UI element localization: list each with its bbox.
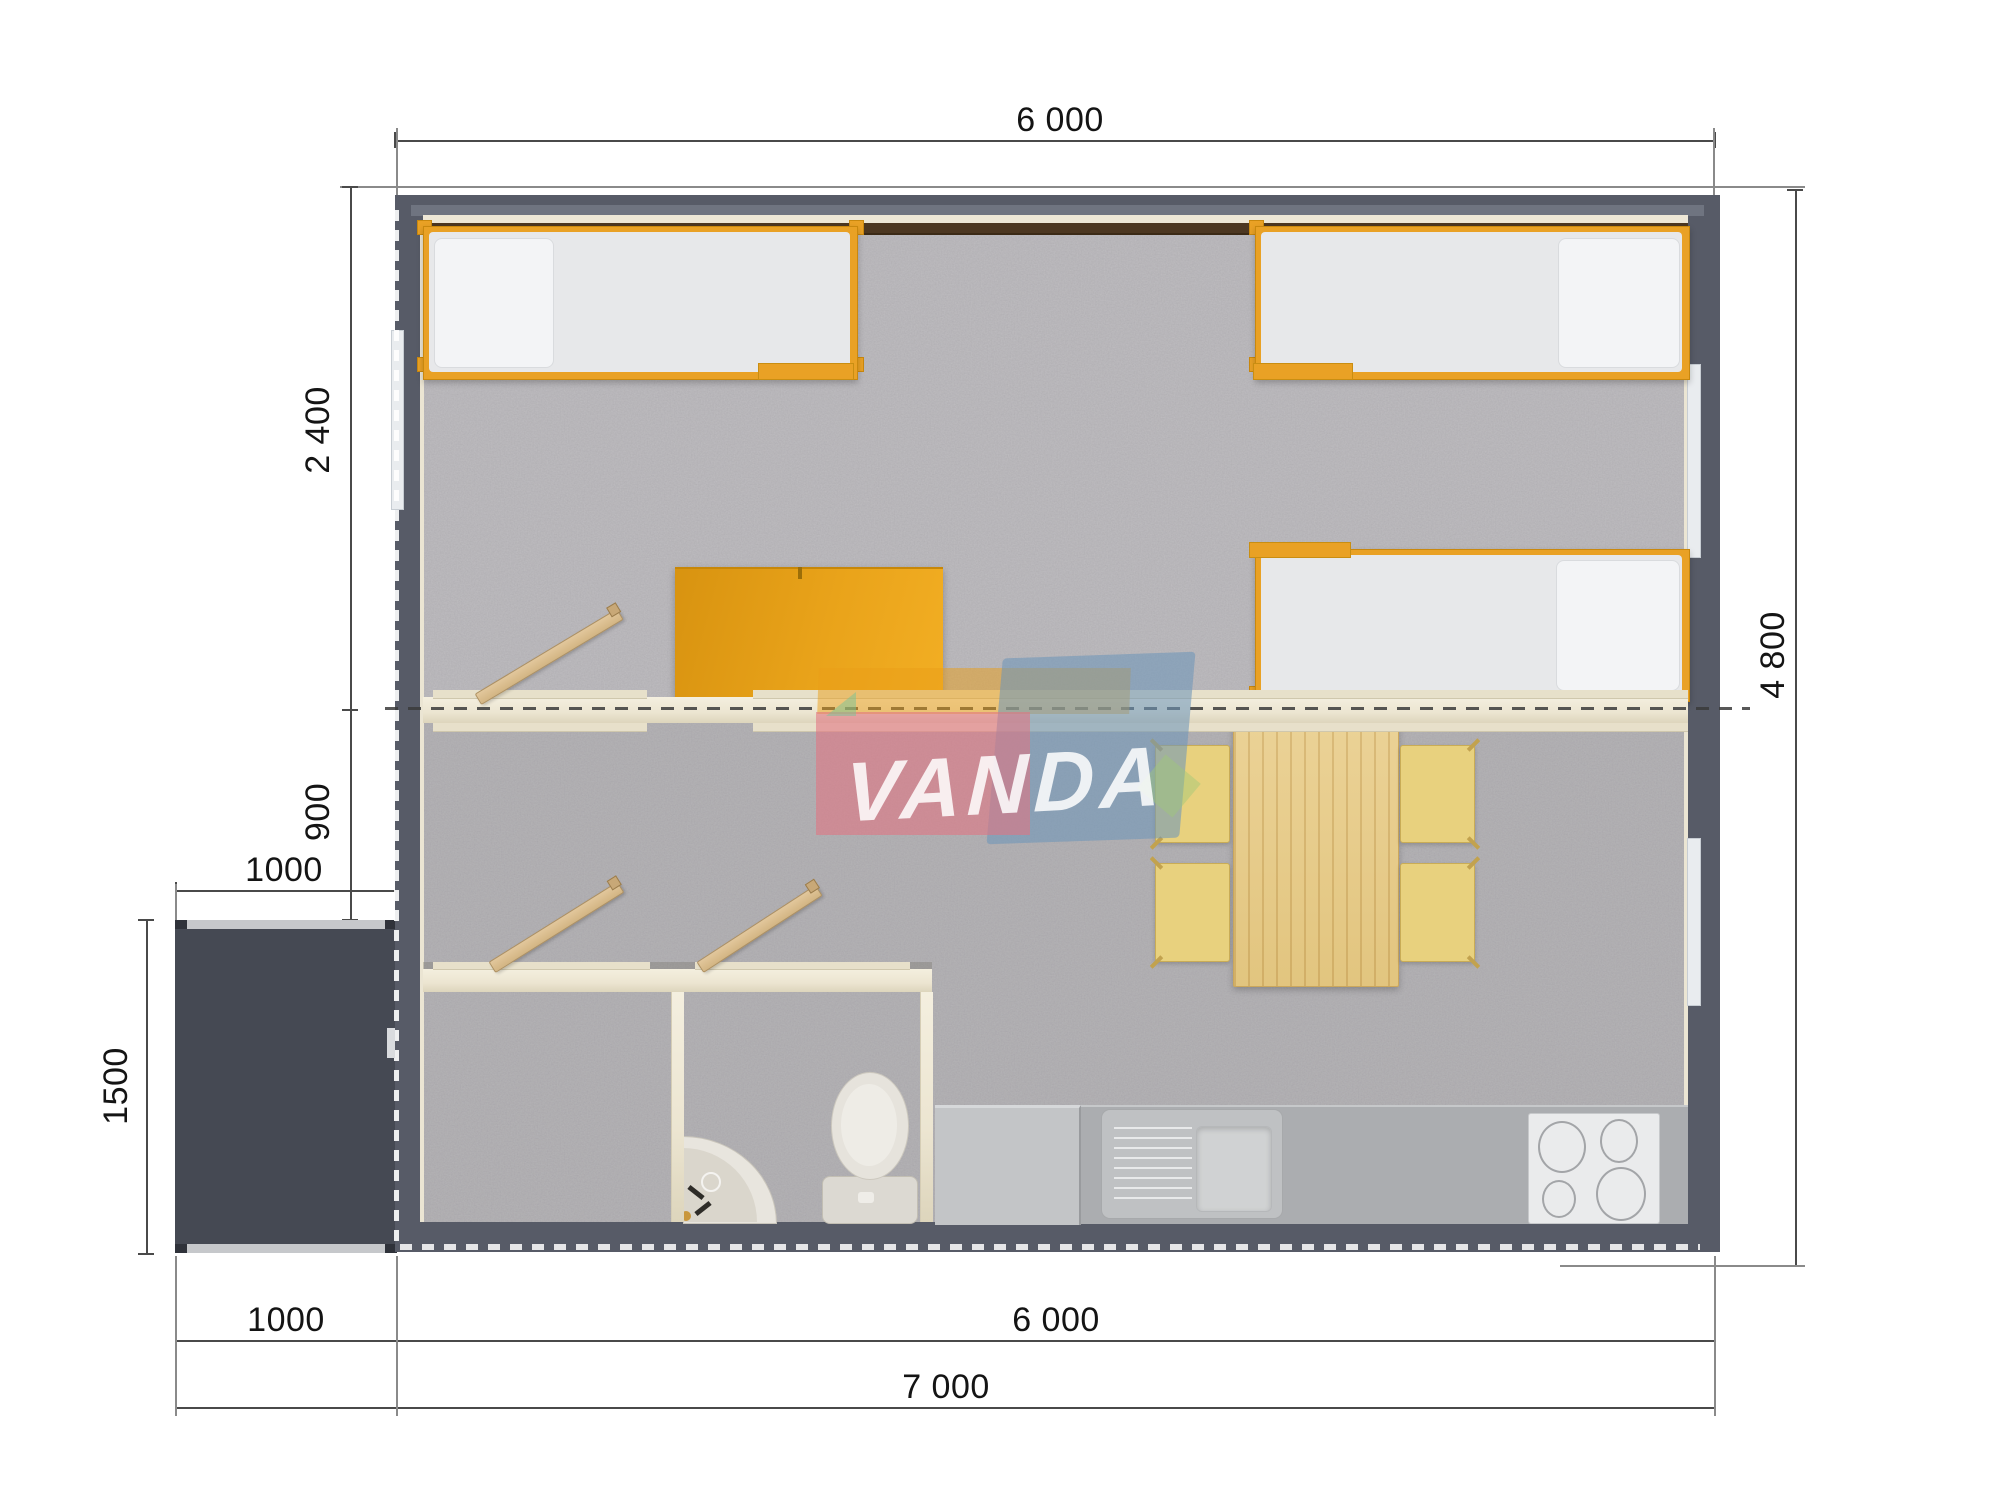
chair [1155,745,1230,843]
dim-extension [175,1256,177,1416]
partition-dashed-line [385,707,1750,710]
dim-label-porch-width-bottom: 1000 [216,1300,356,1340]
dim-label-porch-width-top: 1000 [214,850,354,890]
wardrobe [675,567,943,700]
dim-line-right [1795,190,1797,1267]
porch-step-bottom [186,1244,386,1253]
bottom-wall-dashed-line [400,1244,1700,1250]
wc-wall-vertical-1 [671,992,684,1222]
window-sill-top [423,215,1688,223]
sink-drainboard [1114,1127,1192,1207]
dim-extension [175,884,177,920]
dim-line-top [395,140,1716,142]
dim-label-bedroom-depth: 2 400 [298,360,338,500]
entry-door-dashed-line [394,210,399,1248]
floor-plan-canvas: 6 000 4 800 2 400 900 1000 1500 1000 6 0… [0,0,2000,1502]
burner [1542,1180,1576,1218]
wc-wall-vertical-2 [920,992,933,1222]
wardrobe-seam [798,567,802,579]
dim-label-top-width: 6 000 [990,100,1130,140]
dim-label-total-width: 7 000 [876,1367,1016,1407]
dim-line-bottom-1 [176,1340,1716,1342]
wc-wall-trim [695,962,910,970]
bed-3-pillow [1556,560,1680,691]
partition-trim [753,690,1688,699]
dim-extension [340,186,1805,188]
porch-step-top [186,920,386,929]
wc-wall-horizontal [423,969,932,992]
window-right-wall-lower [1687,838,1701,1006]
dim-tick [138,919,154,921]
chair [1400,745,1475,843]
dim-line-porch-depth [146,920,148,1255]
dim-label-porch-depth: 1500 [96,1016,136,1156]
dim-extension [1714,1256,1716,1416]
porch-corner-cap [175,1244,187,1253]
bed-2-footboard [1253,363,1353,380]
bed-3-headrail [1249,542,1351,558]
burner [1600,1119,1638,1163]
dim-extension [396,1256,398,1416]
faucet-ring [701,1172,721,1192]
chair [1155,863,1230,962]
sink-basin [1196,1126,1272,1212]
chair [1400,863,1475,962]
partition-trim [433,690,647,699]
dim-tick [1787,189,1803,191]
toilet-lid-inner [841,1084,897,1166]
dim-line-bottom-2 [176,1407,1716,1409]
kitchen-cabinet-module [935,1105,1081,1225]
bed-1-pillow [434,238,554,368]
toilet-flush-button [858,1192,874,1203]
dim-tick [342,186,358,188]
window-right-wall-upper [1687,364,1701,558]
burner [1596,1167,1646,1221]
dim-tick [138,1253,154,1255]
bed-2-pillow [1558,238,1680,368]
dim-label-right-height: 4 800 [1753,585,1793,725]
partition-wall-bedroom [423,697,1688,723]
porch-slab [175,920,397,1253]
dim-line-left [350,187,352,920]
burner [1538,1121,1586,1173]
bed-1-footboard [758,363,854,380]
partition-trim [753,723,1688,732]
wc-wall-trim [433,962,650,970]
partition-trim [433,723,647,732]
dim-label-house-width-bottom: 6 000 [986,1300,1126,1340]
porch-corner-cap [175,920,187,929]
entry-door-handle [387,1028,395,1058]
dim-line-porch-top [176,890,398,892]
dining-table [1233,722,1399,987]
dim-tick [342,709,358,711]
dim-extension [1560,1265,1805,1267]
